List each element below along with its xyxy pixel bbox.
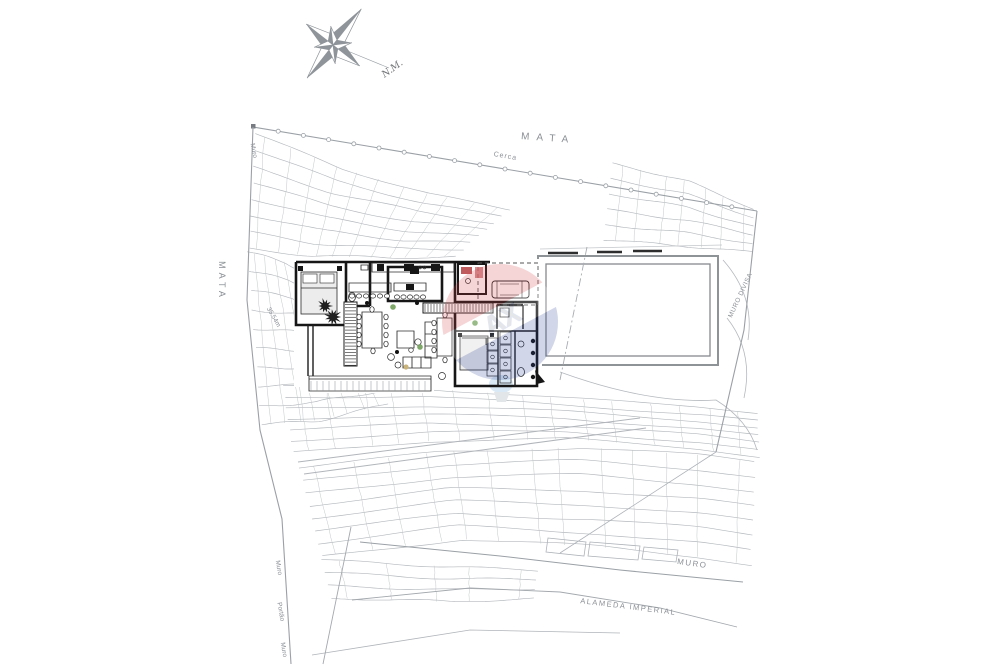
- bar-stool: [356, 294, 361, 298]
- fence-post: [654, 192, 658, 196]
- compass-rose: N.M.: [306, 9, 405, 81]
- contour-line: [325, 572, 536, 580]
- wall-pier: [588, 542, 640, 560]
- ramp-edge: [304, 428, 646, 474]
- fence-post: [679, 196, 683, 200]
- wall-pier: [642, 547, 678, 562]
- dining-chair: [384, 323, 388, 329]
- contour-line: [331, 598, 534, 602]
- contour-rib: [427, 203, 475, 257]
- fence-post: [301, 133, 305, 137]
- contour-line: [252, 200, 479, 236]
- contour-rib: [633, 451, 636, 551]
- contour-line: [321, 560, 538, 572]
- dining-chair: [432, 347, 436, 353]
- fence-post: [503, 167, 507, 171]
- contour-line: [288, 414, 759, 435]
- dining-chair: [384, 332, 388, 338]
- contour-line: [255, 134, 509, 211]
- fence-post: [629, 188, 633, 192]
- fence-post: [528, 171, 532, 175]
- dining-chair: [357, 323, 361, 329]
- dining-chair: [370, 307, 374, 313]
- pool-basin: [546, 264, 710, 356]
- fence-post: [478, 163, 482, 167]
- north-mark-label: N.M.: [379, 58, 405, 81]
- contour-rib: [660, 176, 667, 244]
- contour-rib: [316, 167, 337, 256]
- street-edge-line: [352, 588, 737, 627]
- contour-rib: [349, 179, 378, 257]
- contour-rib: [279, 148, 291, 252]
- dining-chair: [432, 338, 436, 344]
- label-portao: Portão: [275, 602, 285, 622]
- contour-line: [255, 151, 502, 217]
- pillow: [303, 274, 317, 283]
- pillow: [320, 274, 334, 283]
- compass-star: [306, 9, 361, 78]
- terrace-line: [540, 245, 722, 249]
- site-plan-page: AX N.M. MATA MATA Cerca Muro 35.54m MURO…: [0, 0, 1000, 667]
- plant-icon: [390, 304, 396, 310]
- dining-chair: [357, 341, 361, 347]
- contour-line: [613, 163, 754, 210]
- contour-rib: [469, 568, 470, 602]
- contour-line: [254, 183, 487, 229]
- stairs: [344, 302, 357, 366]
- label-muro-top-left: Muro: [249, 143, 259, 159]
- bar-stool: [349, 294, 354, 298]
- fence-post: [604, 184, 608, 188]
- contour-rib: [444, 207, 497, 256]
- label-dimension: 35.54m: [265, 306, 282, 328]
- fixture-dot: [531, 375, 535, 379]
- column-dot: [415, 301, 419, 305]
- contour-rib: [615, 166, 622, 241]
- column-dot: [365, 301, 369, 305]
- contour-line: [291, 431, 758, 450]
- contour-line: [250, 216, 470, 242]
- contour-rib: [386, 563, 392, 600]
- fence-post: [730, 205, 734, 209]
- contour-rib: [634, 170, 640, 242]
- bar-stool: [407, 295, 412, 299]
- compass-point-light: [333, 9, 361, 45]
- contour-line: [262, 404, 388, 425]
- wall-pier: [546, 538, 586, 556]
- plant-icon: [417, 344, 423, 350]
- contour-line: [251, 231, 464, 250]
- column-dot: [395, 350, 399, 354]
- contour-rib: [743, 205, 744, 251]
- fence-post: [352, 142, 356, 146]
- pouf: [403, 364, 408, 369]
- contour-line: [250, 248, 456, 258]
- contour-rib: [421, 388, 429, 441]
- bar-stool: [394, 295, 399, 299]
- contour-line: [312, 500, 753, 520]
- fence-post: [553, 175, 557, 179]
- contour-rib: [583, 400, 589, 441]
- fence-post: [276, 129, 280, 133]
- fence-post: [705, 201, 709, 205]
- contour-line: [310, 487, 754, 506]
- label-muro-bottom-left-1: Muro: [274, 560, 284, 576]
- dining-chair: [357, 332, 361, 338]
- bar-stool: [384, 294, 389, 298]
- label-muro-bottom-left-2: Muro: [279, 642, 289, 658]
- bar-stool: [420, 295, 425, 299]
- contour-rib: [697, 455, 698, 557]
- fence-post: [402, 150, 406, 154]
- contour-rib: [265, 256, 285, 423]
- contour-rib: [678, 181, 684, 246]
- bar-stool: [363, 294, 368, 298]
- contour-rib: [532, 449, 541, 544]
- label-mata-top: MATA: [521, 131, 576, 146]
- dining-chair: [432, 320, 436, 326]
- contour-line: [259, 391, 382, 405]
- contour-rib: [558, 448, 565, 545]
- dining-chair: [432, 329, 436, 335]
- swimming-pool: [538, 245, 722, 380]
- wall-dashes: [548, 251, 662, 253]
- contour-line: [560, 372, 757, 450]
- contour-rib: [297, 158, 314, 255]
- contour-line: [294, 438, 760, 458]
- label-alameda-imperial: ALAMEDA IMPERIAL: [580, 596, 677, 617]
- bar-stool: [414, 295, 419, 299]
- contour-rib: [701, 189, 705, 248]
- contour-rib: [434, 566, 437, 602]
- contour-rib: [487, 450, 499, 541]
- contour-line: [318, 525, 750, 550]
- label-mata-left: MATA: [217, 261, 227, 301]
- dining-chair: [443, 357, 447, 363]
- contour-rib: [487, 393, 494, 440]
- fence-post: [327, 138, 331, 142]
- contour-line: [315, 513, 752, 535]
- label-muro-divisa: MURO DIVISA: [727, 272, 754, 319]
- contour-line: [253, 166, 494, 224]
- fence-post: [377, 146, 381, 150]
- contour-rib: [601, 448, 605, 547]
- bar-stool: [377, 294, 382, 298]
- bar-stool: [401, 295, 406, 299]
- dining-chair: [357, 314, 361, 320]
- fence-post: [453, 159, 457, 163]
- site-plan-drawing: AX N.M. MATA MATA Cerca Muro 35.54m MURO…: [0, 0, 1000, 667]
- contour-line: [303, 459, 755, 480]
- contour-rib: [721, 196, 724, 249]
- bar-stool: [370, 294, 375, 298]
- fence-posts: [276, 129, 734, 209]
- dining-chair: [384, 341, 388, 347]
- street-edge-line: [312, 630, 620, 655]
- dining-chair: [371, 348, 375, 354]
- dining-chair: [384, 314, 388, 320]
- label-cerca: Cerca: [493, 151, 518, 162]
- fence-post: [427, 154, 431, 158]
- contour-rib: [314, 466, 336, 554]
- fence-post: [579, 180, 583, 184]
- contour-rib: [519, 570, 522, 599]
